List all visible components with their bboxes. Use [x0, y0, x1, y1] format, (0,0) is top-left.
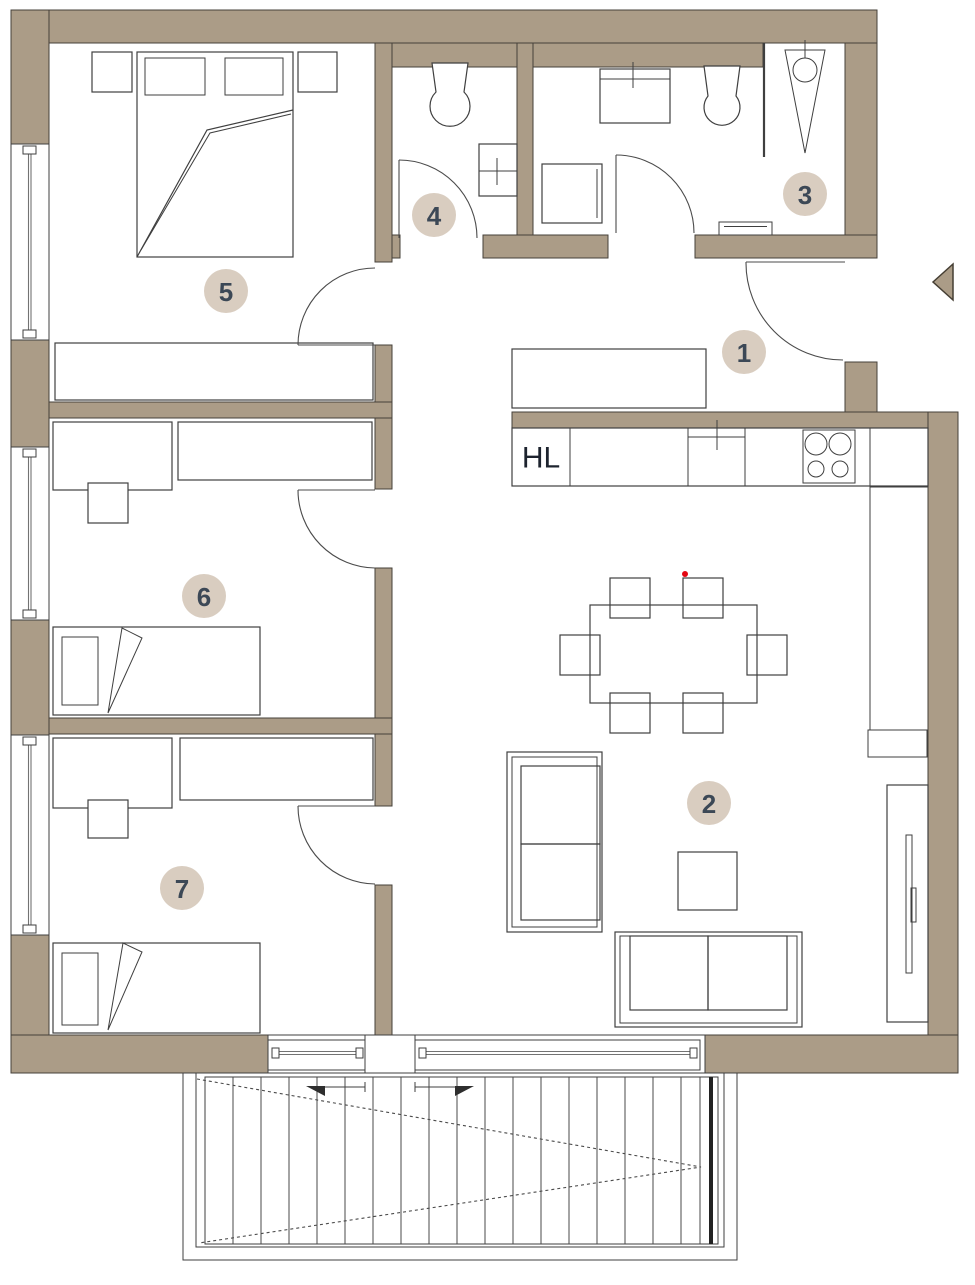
wall-right-upper-b	[845, 362, 877, 414]
washing-machine	[542, 164, 602, 223]
wall-kitchen-strip	[512, 412, 958, 428]
wall-central-c	[375, 568, 392, 806]
dining-table	[590, 605, 757, 703]
wall-central-d	[375, 885, 392, 1035]
wall-right-upper-a	[845, 43, 877, 258]
wall-left-d	[11, 935, 49, 1038]
kitchen: HL	[512, 420, 928, 757]
wall-divider-6-7	[49, 718, 392, 734]
door-bedroom-5	[298, 268, 375, 345]
red-dot	[682, 571, 688, 577]
single-bed	[53, 627, 260, 715]
single-bed	[53, 943, 260, 1033]
balcony-outline	[183, 1073, 737, 1260]
wall-left-b	[11, 340, 49, 447]
sliding-panel-left	[268, 1040, 365, 1070]
wall-divider-5-6	[49, 402, 392, 418]
vanity-sink	[600, 69, 670, 123]
wall-right-lower	[928, 412, 958, 1073]
counter-end-cabinet	[868, 730, 927, 757]
hallway-furniture	[512, 349, 706, 408]
wall-hall-top-c	[695, 235, 877, 258]
floor-plan-page: 1 2 3 4 5 6 7	[0, 0, 975, 1285]
room-label-7: 7	[175, 874, 189, 904]
wardrobe	[180, 738, 373, 800]
room-label-4: 4	[427, 201, 442, 231]
stove-icon	[803, 430, 855, 483]
shower-icon	[785, 40, 825, 153]
room-label-2: 2	[702, 789, 716, 819]
wall-top	[11, 10, 877, 43]
coffee-table	[678, 852, 737, 910]
door-room-7	[298, 806, 375, 884]
desk	[53, 738, 172, 808]
nightstand	[92, 52, 132, 92]
wardrobe	[55, 343, 373, 400]
floor-plan: 1 2 3 4 5 6 7	[0, 0, 975, 1285]
room-label-3: 3	[798, 180, 812, 210]
wall-hall-top-b	[483, 235, 608, 258]
wall-left-c	[11, 620, 49, 735]
door-room-6	[298, 490, 375, 568]
sideboard	[512, 349, 706, 408]
wall-bottom-a	[11, 1035, 268, 1073]
entrance-arrow-icon	[933, 264, 953, 300]
sliding-doors	[268, 1035, 705, 1073]
bathroom-fixtures	[542, 40, 825, 235]
sofa	[615, 932, 802, 1027]
wall-left-a	[11, 10, 49, 144]
room-7-furniture	[53, 738, 373, 1033]
chair	[683, 578, 723, 618]
chair	[610, 578, 650, 618]
sliding-mullion	[365, 1035, 415, 1073]
toilet-icon	[430, 63, 470, 126]
tv-sideboard	[887, 785, 928, 1022]
window	[11, 735, 49, 935]
wall-central-a	[375, 43, 392, 262]
sliding-panel-right	[415, 1040, 700, 1070]
windows	[11, 144, 49, 935]
chair	[610, 693, 650, 733]
room-6-furniture	[53, 422, 372, 715]
room-label-1: 1	[737, 338, 751, 368]
sofa	[507, 752, 602, 932]
desk-chair	[88, 800, 128, 838]
room-label-6: 6	[197, 582, 211, 612]
toilet-icon	[704, 66, 740, 125]
slide-arrow-left	[306, 1082, 365, 1096]
bedroom-5-furniture	[55, 52, 373, 400]
slide-arrow-right	[415, 1082, 474, 1096]
wall-hall-top-a	[392, 235, 400, 258]
window	[11, 447, 49, 620]
radiator-shelf	[719, 222, 772, 235]
wc-fixtures	[430, 63, 517, 196]
door-bathroom	[616, 155, 694, 233]
wall-bottom-b	[705, 1035, 958, 1073]
double-bed	[137, 52, 293, 257]
wardrobe	[178, 422, 372, 480]
dining-set	[560, 571, 787, 733]
balcony-deck	[205, 1077, 718, 1244]
washbasin	[479, 144, 517, 196]
room-label-5: 5	[219, 277, 233, 307]
nightstand	[298, 52, 337, 92]
balcony	[183, 1073, 737, 1260]
deck-planks	[233, 1077, 711, 1244]
chair	[560, 635, 600, 675]
chair	[747, 635, 787, 675]
desk	[53, 422, 172, 490]
chair	[683, 693, 723, 733]
shaft-label: HL	[522, 442, 560, 475]
window	[11, 144, 49, 340]
wall-wc-bath-divider	[517, 43, 533, 235]
desk-chair	[88, 483, 128, 523]
